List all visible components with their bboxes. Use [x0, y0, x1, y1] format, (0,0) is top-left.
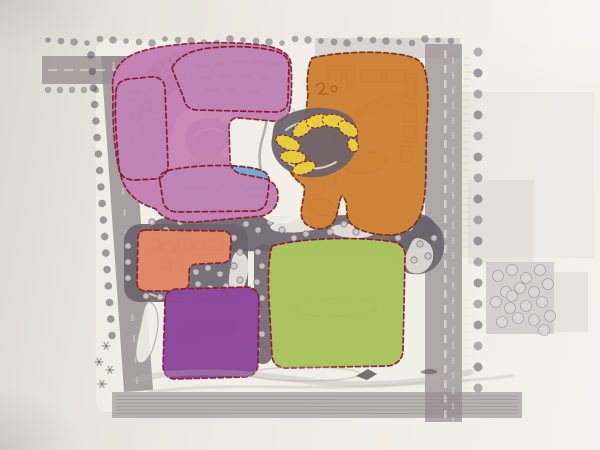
- tree-dot-right: [474, 258, 483, 267]
- tree-dot-right: [474, 195, 483, 204]
- tree-dot-left: [90, 84, 98, 92]
- forest-tree: [529, 315, 540, 326]
- tree-dot-top: [370, 37, 377, 44]
- lane-dash: [452, 132, 454, 139]
- lane-dash: [452, 267, 454, 274]
- court-tree-dot: [417, 241, 423, 247]
- tree-dot-top: [148, 39, 156, 47]
- court-tree-dot: [237, 277, 243, 283]
- lane-dash: [444, 335, 447, 343]
- forest-tree: [493, 271, 504, 282]
- lane-dash: [444, 320, 447, 328]
- lane-dash: [452, 147, 454, 154]
- court-tree-dot: [431, 235, 437, 241]
- lane-dash: [444, 200, 447, 208]
- lane-dash: [131, 314, 133, 321]
- tree-dot-top: [58, 38, 65, 45]
- lane-dash: [133, 335, 135, 342]
- forest-tree: [543, 279, 554, 290]
- tree-dot-top: [97, 36, 104, 43]
- lane-dash: [452, 312, 454, 319]
- purple-outline: [163, 287, 259, 379]
- lane-dash: [444, 275, 447, 283]
- lane-dash: [452, 162, 454, 169]
- tree-dot-left: [97, 183, 105, 191]
- lane-dash: [452, 297, 454, 304]
- lane-dash: [444, 215, 447, 223]
- tree-dot-left: [103, 266, 111, 274]
- tree-dot-left: [88, 68, 96, 76]
- tree-dot-right: [474, 300, 483, 309]
- tree-dot-left: [87, 51, 95, 59]
- court-tree-dot: [231, 263, 237, 269]
- tree-dot-top: [253, 38, 260, 45]
- lane-dash: [452, 117, 454, 124]
- court-tree-dot: [125, 275, 131, 281]
- court-tree-dot: [243, 221, 249, 227]
- forest-tree: [529, 287, 540, 298]
- court-tree-dot: [254, 279, 260, 285]
- tree-dot-top: [240, 37, 246, 43]
- court-tree-dot: [279, 227, 285, 233]
- tree-dot-top: [109, 36, 117, 44]
- tree-dot-right: [474, 216, 483, 225]
- tree-dot-left: [107, 315, 115, 323]
- tree-dot-left: [98, 200, 106, 208]
- court-tree-dot: [259, 263, 265, 269]
- court-tree-dot: [193, 269, 199, 275]
- forest-tree: [539, 325, 550, 336]
- lane-dash: [444, 185, 447, 193]
- green-outline: [268, 239, 405, 368]
- tree-dot-left: [108, 332, 116, 340]
- forest-tree: [535, 265, 546, 276]
- forest-tree: [491, 297, 502, 308]
- lane-dash: [444, 365, 447, 373]
- tree-dot-right: [474, 153, 483, 162]
- court-tree-dot: [303, 231, 309, 237]
- court-tree-dot: [205, 265, 211, 271]
- lane-dash: [452, 417, 454, 424]
- tree-dot-top: [69, 87, 75, 93]
- tree-dot-top: [279, 40, 285, 46]
- tree-dot-left: [96, 167, 104, 175]
- tree-dot-top: [396, 39, 402, 45]
- lane-dash: [48, 69, 57, 71]
- lane-dash: [444, 230, 447, 238]
- lane-dash: [452, 57, 454, 64]
- tree-dot-top: [70, 38, 78, 46]
- lane-dash: [444, 65, 447, 73]
- lane-dash: [452, 252, 454, 259]
- tree-dot-top: [57, 87, 63, 93]
- tree-dot-right: [474, 174, 483, 183]
- forest-tree: [507, 291, 518, 302]
- lane-dash: [124, 209, 126, 216]
- lane-dash: [452, 387, 454, 394]
- lane-dash: [452, 222, 454, 229]
- lane-dash: [444, 155, 447, 163]
- tree-dot-right: [474, 237, 483, 246]
- tree-dot-top: [357, 36, 363, 42]
- forest-tree: [537, 297, 548, 308]
- lane-dash: [113, 62, 115, 69]
- lane-dash: [444, 290, 447, 298]
- tree-dot-right: [474, 90, 483, 99]
- tree-dot-right: [474, 321, 483, 330]
- tree-dot-right: [474, 132, 483, 141]
- tree-dot-left: [100, 216, 108, 224]
- court-tree-dot: [149, 219, 155, 225]
- tree-dot-left: [102, 249, 110, 257]
- tree-dot-top: [343, 39, 351, 47]
- lane-dash: [444, 125, 447, 133]
- lane-dash: [96, 69, 105, 71]
- lane-dash: [452, 192, 454, 199]
- tree-dot-left: [106, 299, 114, 307]
- lane-dash: [452, 342, 454, 349]
- forest-tree: [497, 317, 508, 328]
- tree-dot-left: [92, 117, 100, 125]
- court-tree-dot: [259, 331, 265, 337]
- tree-dot-top: [265, 38, 273, 46]
- court-tree-dot: [255, 227, 261, 233]
- tree-dot-top: [162, 36, 168, 42]
- tree-dot-top: [448, 38, 455, 45]
- lane-dash: [444, 305, 447, 313]
- tree-dot-top: [304, 36, 312, 44]
- tree-dot-top: [136, 39, 143, 46]
- tree-dot-top: [45, 87, 51, 93]
- site-plan-photo: [0, 0, 600, 450]
- tree-dot-left: [91, 101, 99, 109]
- tree-dot-top: [318, 38, 324, 44]
- lane-dash: [452, 357, 454, 364]
- tree-dot-top: [331, 39, 338, 46]
- lane-dash: [444, 350, 447, 358]
- lane-dash: [452, 282, 454, 289]
- tree-dot-top: [81, 87, 87, 93]
- tree-dot-top: [382, 37, 390, 45]
- site-plan-drawing: [0, 0, 600, 450]
- lane-dash: [452, 72, 454, 79]
- forest-wash: [554, 272, 588, 332]
- tree-dot-top: [226, 35, 234, 43]
- tree-dot-right: [474, 342, 483, 351]
- court-tree-dot: [259, 295, 265, 301]
- forest-tree: [505, 303, 516, 314]
- court-tree-dot: [143, 293, 149, 299]
- lane-dash: [444, 95, 447, 103]
- tree-dot-right: [474, 69, 483, 78]
- lane-dash: [452, 102, 454, 109]
- lane-dash: [80, 69, 89, 71]
- court-tree-dot: [195, 281, 201, 287]
- lane-dash: [122, 188, 124, 195]
- zone-green-field: [268, 239, 405, 368]
- tree-dot-top: [45, 37, 51, 43]
- tree-dot-left: [105, 282, 113, 290]
- forest-tree: [545, 311, 556, 322]
- tree-dot-top: [292, 36, 299, 43]
- forest-tree: [521, 273, 532, 284]
- tree-dot-left: [95, 150, 103, 158]
- court-tree-dot: [157, 294, 163, 300]
- court-tree-dot: [125, 243, 131, 249]
- court-tree-dot: [291, 235, 297, 241]
- tree-dot-top: [421, 35, 429, 43]
- court-tree-dot: [237, 249, 243, 255]
- court-tree-dot: [125, 259, 131, 265]
- forest-tree: [513, 313, 524, 324]
- court-tree-dot: [425, 253, 431, 259]
- lane-dash: [444, 110, 447, 118]
- zone-purple-block: [163, 287, 259, 379]
- tree-dot-right: [474, 384, 483, 393]
- tree-dot-top: [123, 38, 129, 44]
- court-tree-dot: [255, 249, 261, 255]
- forest-tree: [507, 265, 518, 276]
- lane-dash: [452, 327, 454, 334]
- lane-dash: [452, 87, 454, 94]
- court-tree-dot: [327, 229, 333, 235]
- lane-dash: [452, 177, 454, 184]
- tree-dot-top: [409, 40, 416, 47]
- tree-dot-right: [474, 363, 483, 372]
- tree-dot-top: [175, 37, 182, 44]
- court-tree-dot: [411, 257, 417, 263]
- lane-dash: [452, 207, 454, 214]
- court-tree-dot: [395, 235, 401, 241]
- tree-dot-top: [84, 40, 90, 46]
- tree-dot-right: [474, 111, 483, 120]
- lane-dash: [444, 50, 447, 58]
- lane-dash: [452, 237, 454, 244]
- lane-dash: [444, 80, 447, 88]
- court-tree-dot: [341, 221, 347, 227]
- lane-dash: [444, 140, 447, 148]
- lane-dash: [444, 170, 447, 178]
- lane-dash: [64, 69, 73, 71]
- tree-dot-left: [93, 134, 101, 142]
- forest-tree: [521, 301, 532, 312]
- tree-dot-right: [474, 48, 483, 57]
- court-tree-dot: [217, 271, 223, 277]
- lane-dash: [444, 245, 447, 253]
- forest-tree: [515, 283, 526, 294]
- tree-dot-left: [101, 233, 109, 241]
- tree-dot-top: [435, 37, 441, 43]
- lane-dash: [444, 260, 447, 268]
- tree-dot-right: [474, 279, 483, 288]
